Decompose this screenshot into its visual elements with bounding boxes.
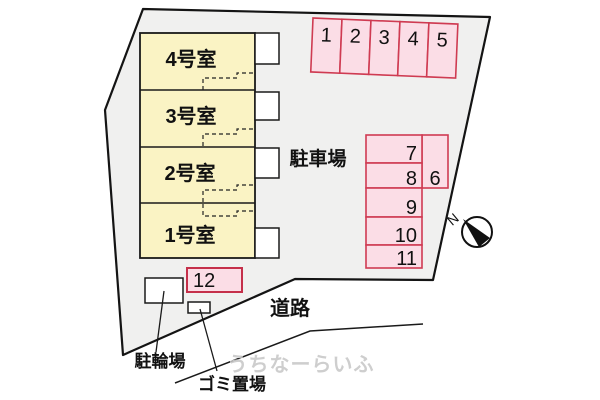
bicycle-parking-label: 駐輪場 (135, 351, 186, 371)
parking-area-label: 駐車場 (289, 147, 346, 170)
watermark: うちなーらいふ (228, 353, 375, 376)
parking-space-number: 1 (320, 24, 332, 46)
parking-space-number: 12 (193, 270, 215, 292)
parking-top-row: 1 2 3 4 5 (311, 18, 458, 78)
room-label: 3号室 (165, 104, 216, 128)
north-arrow: N (444, 210, 492, 247)
parking-space-number: 10 (395, 225, 417, 247)
parking-space-number: 2 (349, 26, 361, 48)
room-porch (255, 92, 279, 120)
parking-space-number: 6 (429, 168, 440, 190)
parking-space-number: 3 (378, 27, 390, 49)
parking-space-number: 7 (406, 143, 417, 165)
room-label: 2号室 (164, 161, 215, 185)
parking-space-number: 4 (407, 28, 419, 50)
road-label: 道路 (270, 296, 311, 320)
parking-space-number: 8 (406, 168, 417, 190)
parking-space-number: 5 (436, 29, 448, 51)
site-plan-svg: 4号室 3号室 2号室 1号室 1 2 3 4 5 7 8 9 10 11 6 … (0, 0, 600, 400)
parking-space-number: 11 (396, 248, 417, 270)
room-porch (255, 228, 279, 258)
bicycle-parking-box (145, 278, 183, 303)
room-porch (255, 33, 279, 64)
room-label: 4号室 (165, 47, 216, 71)
site-plan: 4号室 3号室 2号室 1号室 1 2 3 4 5 7 8 9 10 11 6 … (0, 0, 600, 400)
parking-space-number: 9 (406, 197, 417, 219)
garbage-area-label: ゴミ置場 (198, 374, 266, 394)
room-label: 1号室 (164, 223, 215, 247)
room-porch (255, 148, 279, 178)
garbage-box (188, 302, 210, 313)
